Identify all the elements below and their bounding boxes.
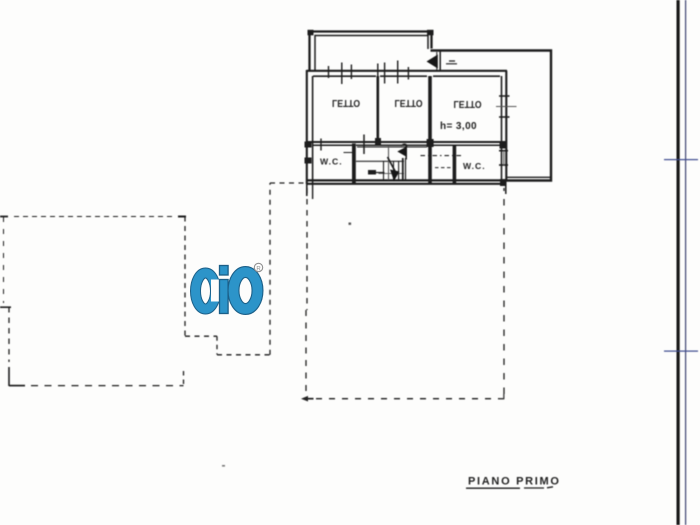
svg-text:R: R	[256, 266, 261, 272]
svg-text:h= 3,00: h= 3,00	[440, 121, 477, 132]
svg-text:W.C.: W.C.	[320, 157, 343, 167]
svg-text:PIANO PRIMO: PIANO PRIMO	[468, 476, 561, 488]
svg-text:LETTO: LETTO	[453, 98, 482, 110]
svg-text:LETTO: LETTO	[332, 97, 361, 109]
svg-text:W.C.: W.C.	[463, 161, 486, 171]
svg-text:LETTO: LETTO	[394, 97, 423, 109]
